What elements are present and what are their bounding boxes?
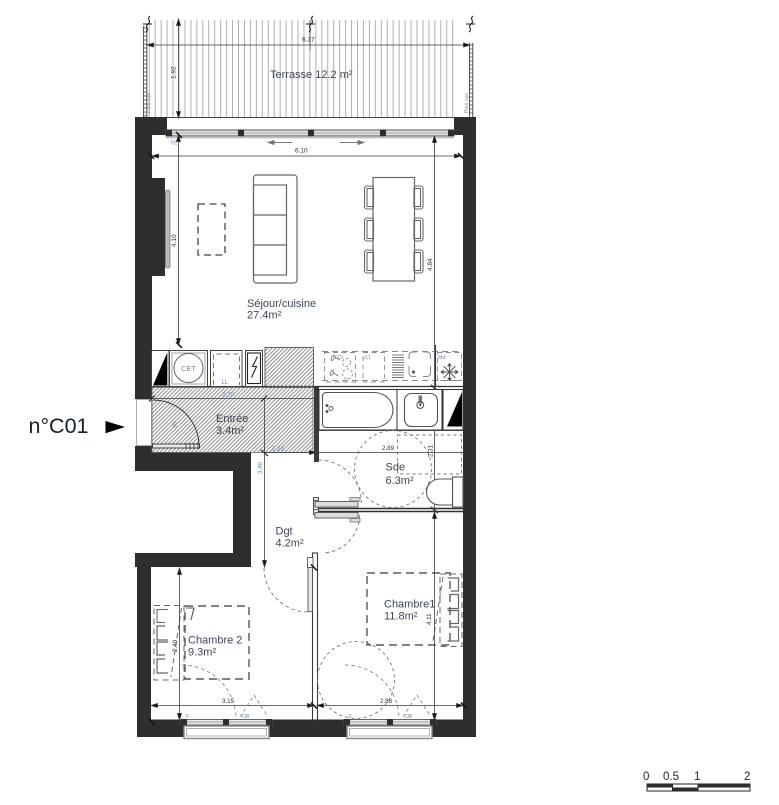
svg-text:n°C01: n°C01 — [29, 414, 89, 438]
svg-text:6.37: 6.37 — [302, 37, 315, 44]
svg-text:1.92: 1.92 — [171, 66, 178, 79]
svg-text:11.8m²: 11.8m² — [384, 611, 418, 623]
svg-text:9.3m²: 9.3m² — [188, 647, 216, 659]
svg-text:LL: LL — [222, 380, 229, 386]
svg-text:Entrée: Entrée — [216, 413, 248, 425]
svg-text:3.46: 3.46 — [257, 461, 264, 474]
svg-text:OB: OB — [405, 714, 413, 720]
svg-text:0.5: 0.5 — [663, 771, 679, 783]
svg-text:4.10: 4.10 — [171, 234, 178, 247]
svg-text:CU: CU — [335, 353, 343, 359]
svg-text:4.84: 4.84 — [427, 258, 434, 271]
svg-text:Terrasse 12.2 m²: Terrasse 12.2 m² — [270, 69, 353, 81]
svg-text:LV: LV — [364, 354, 371, 360]
svg-text:F: F — [186, 714, 189, 720]
svg-text:F: F — [349, 714, 352, 720]
svg-text:Dgt: Dgt — [276, 526, 293, 538]
svg-text:2.88: 2.88 — [380, 698, 393, 705]
svg-text:FR: FR — [438, 353, 445, 359]
svg-text:2: 2 — [744, 771, 750, 783]
svg-text:Sde: Sde — [386, 462, 406, 474]
svg-text:Séjour/cuisine: Séjour/cuisine — [247, 298, 316, 310]
svg-text:3.4m²: 3.4m² — [216, 425, 244, 437]
svg-text:2.31: 2.31 — [428, 444, 435, 457]
svg-text:2.20: 2.20 — [222, 392, 235, 399]
svg-text:1.22: 1.22 — [272, 446, 285, 453]
svg-text:27.4m²: 27.4m² — [247, 310, 282, 322]
svg-text:CET: CET — [181, 364, 196, 373]
svg-text:0: 0 — [643, 771, 649, 783]
svg-text:2.89: 2.89 — [382, 445, 395, 452]
svg-text:6.3m²: 6.3m² — [386, 475, 414, 487]
svg-text:4.2m²: 4.2m² — [276, 538, 304, 550]
svg-text:4.11: 4.11 — [426, 613, 433, 625]
svg-text:OB: OB — [242, 714, 250, 720]
svg-text:90: 90 — [173, 422, 179, 428]
svg-text:Chambre1: Chambre1 — [384, 599, 435, 611]
svg-text:2.40: 2.40 — [172, 639, 179, 652]
svg-text:Pare vue: Pare vue — [147, 93, 153, 113]
svg-text:Pare vue: Pare vue — [464, 93, 470, 113]
svg-text:1: 1 — [694, 771, 700, 783]
svg-text:6.10: 6.10 — [295, 148, 308, 155]
svg-text:Chambre 2: Chambre 2 — [188, 635, 242, 647]
